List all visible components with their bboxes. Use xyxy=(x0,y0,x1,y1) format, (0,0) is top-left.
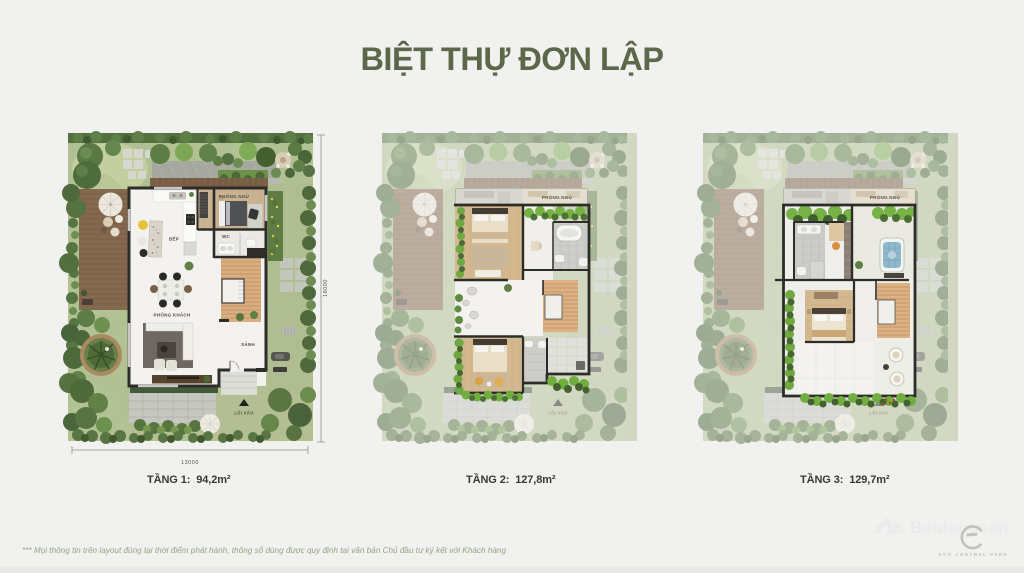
svg-text:13000: 13000 xyxy=(181,460,199,466)
svg-text:BẾP: BẾP xyxy=(169,236,179,242)
svg-text:WC: WC xyxy=(222,234,231,239)
svg-text:PHÒNG NGỦ: PHÒNG NGỦ xyxy=(870,193,901,200)
svg-text:PHÒNG NGỦ: PHÒNG NGỦ xyxy=(219,192,250,199)
svg-text:18000: 18000 xyxy=(323,279,329,297)
svg-text:ECO CENTRAL PARK: ECO CENTRAL PARK xyxy=(939,552,1009,557)
svg-text:PHÒNG NGỦ: PHÒNG NGỦ xyxy=(542,193,573,200)
svg-text:PHÒNG KHÁCH: PHÒNG KHÁCH xyxy=(154,311,191,318)
svg-text:SẢNH: SẢNH xyxy=(241,341,255,347)
